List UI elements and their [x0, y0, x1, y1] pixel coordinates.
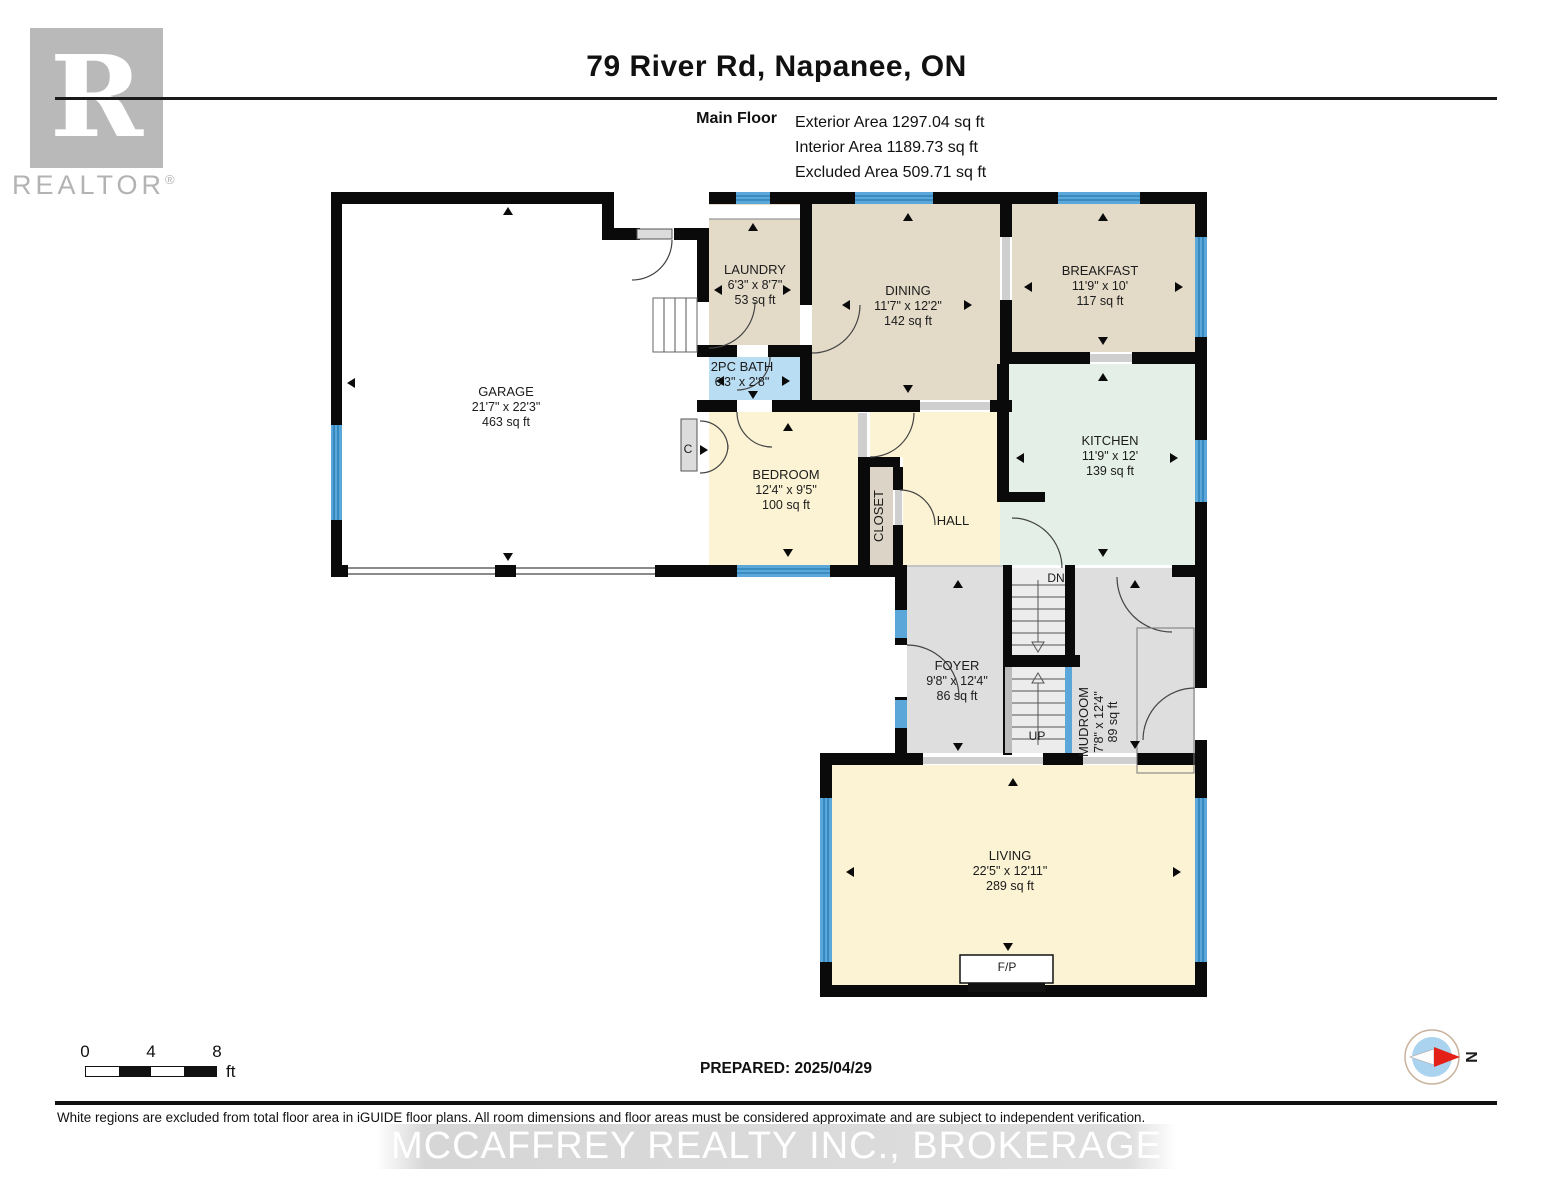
registered-mark: ®: [165, 172, 175, 187]
svg-text:KITCHEN: KITCHEN: [1081, 433, 1138, 448]
svg-text:463 sq ft: 463 sq ft: [482, 415, 530, 429]
svg-text:22'5" x 12'11": 22'5" x 12'11": [973, 864, 1048, 878]
svg-text:21'7" x 22'3": 21'7" x 22'3": [472, 400, 541, 414]
fireplace-label: F/P: [998, 960, 1017, 974]
footer-divider: [55, 1101, 1497, 1105]
floor-name: Main Floor: [540, 110, 777, 128]
svg-text:LAUNDRY: LAUNDRY: [724, 262, 786, 277]
svg-text:LIVING: LIVING: [989, 848, 1032, 863]
stairs-up-label: UP: [1029, 729, 1046, 743]
svg-text:MUDROOM: MUDROOM: [1076, 687, 1091, 757]
floor-plan-page: R REALTOR® 79 River Rd, Napanee, ON Main…: [0, 0, 1553, 1200]
svg-text:DINING: DINING: [885, 283, 931, 298]
svg-text:2PC BATH: 2PC BATH: [711, 359, 774, 374]
scale-tick-8: 8: [207, 1042, 227, 1062]
svg-text:12'4" x 9'5": 12'4" x 9'5": [755, 483, 817, 497]
excluded-area: Excluded Area 509.71 sq ft: [795, 160, 986, 185]
svg-text:7'8" x 12'4": 7'8" x 12'4": [1092, 691, 1106, 753]
room-label-bedroom: BEDROOM 12'4" x 9'5" 100 sq ft: [752, 467, 819, 512]
svg-text:289 sq ft: 289 sq ft: [986, 879, 1034, 893]
svg-text:6'3" x 2'8": 6'3" x 2'8": [715, 375, 770, 389]
svg-text:BREAKFAST: BREAKFAST: [1062, 263, 1139, 278]
svg-text:89 sq ft: 89 sq ft: [1106, 701, 1120, 743]
svg-text:BEDROOM: BEDROOM: [752, 467, 819, 482]
room-label-hall: HALL: [937, 513, 970, 528]
room-label-kitchen: KITCHEN 11'9" x 12' 139 sq ft: [1081, 433, 1138, 478]
svg-text:100 sq ft: 100 sq ft: [762, 498, 810, 512]
brokerage-watermark: MCCAFFREY REALTY INC., BROKERAGE: [377, 1124, 1176, 1169]
svg-text:139 sq ft: 139 sq ft: [1086, 464, 1134, 478]
realtor-wordmark: REALTOR®: [12, 170, 175, 201]
stairs-dn-label: DN: [1047, 571, 1064, 585]
compass-north-label: N: [1462, 1051, 1479, 1063]
svg-text:11'7" x 12'2": 11'7" x 12'2": [874, 299, 942, 313]
svg-text:117 sq ft: 117 sq ft: [1076, 294, 1124, 308]
prepared-date: PREPARED: 2025/04/29: [700, 1060, 872, 1078]
floor-plan-drawing: GARAGE 21'7" x 22'3" 463 sq ft LAUNDRY 6…: [320, 185, 1220, 1005]
interior-area: Interior Area 1189.73 sq ft: [795, 135, 986, 160]
closet-c-label: C: [684, 442, 693, 456]
disclaimer-text: White regions are excluded from total fl…: [57, 1110, 1257, 1125]
svg-text:GARAGE: GARAGE: [478, 384, 534, 399]
scale-unit: ft: [226, 1062, 235, 1082]
watermark-row: MCCAFFREY REALTY INC., BROKERAGE: [0, 1124, 1553, 1169]
scale-tick-0: 0: [75, 1042, 95, 1062]
area-summary: Exterior Area 1297.04 sq ft Interior Are…: [795, 110, 986, 185]
compass-icon: N: [1400, 1026, 1480, 1088]
svg-text:86 sq ft: 86 sq ft: [937, 689, 979, 703]
svg-text:53 sq ft: 53 sq ft: [735, 293, 777, 307]
svg-text:142 sq ft: 142 sq ft: [884, 314, 932, 328]
scale-tick-4: 4: [141, 1042, 161, 1062]
svg-text:9'8" x 12'4": 9'8" x 12'4": [926, 674, 988, 688]
room-label-closet: CLOSET: [871, 490, 886, 542]
steps-icon: [653, 298, 697, 352]
svg-text:FOYER: FOYER: [935, 658, 980, 673]
exterior-area: Exterior Area 1297.04 sq ft: [795, 110, 986, 135]
page-title: 79 River Rd, Napanee, ON: [0, 50, 1553, 84]
title-divider: [55, 97, 1497, 100]
scale-bar: [85, 1066, 217, 1077]
svg-text:6'3" x 8'7": 6'3" x 8'7": [728, 278, 783, 292]
svg-text:11'9" x 10': 11'9" x 10': [1072, 279, 1128, 293]
svg-text:11'9" x 12': 11'9" x 12': [1082, 449, 1138, 463]
